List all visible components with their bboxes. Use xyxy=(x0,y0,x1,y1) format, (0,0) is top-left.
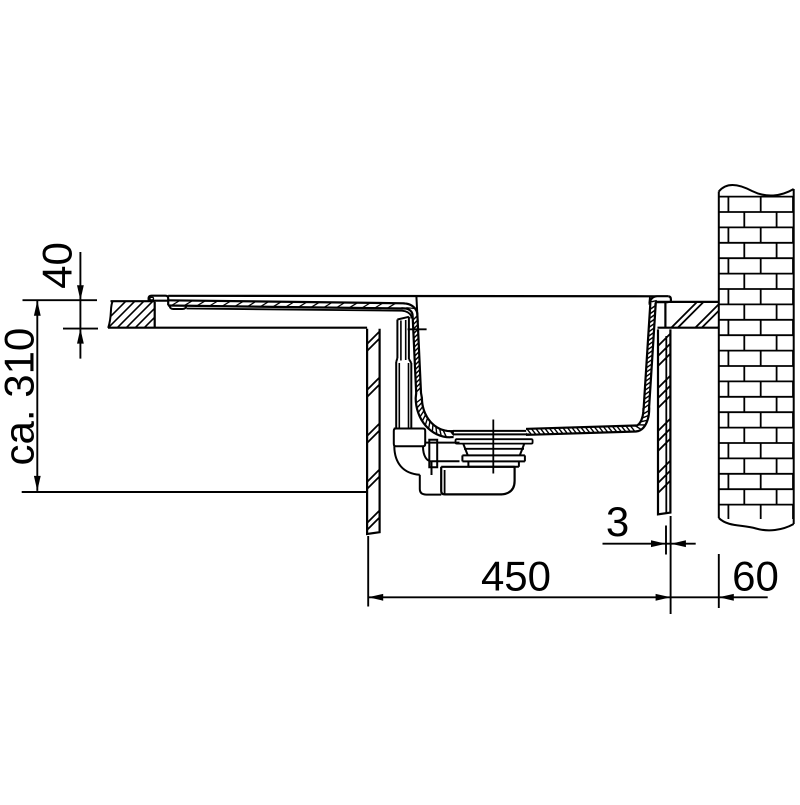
svg-text:ca. 310: ca. 310 xyxy=(0,328,43,466)
svg-text:450: 450 xyxy=(481,553,551,600)
svg-text:60: 60 xyxy=(732,553,779,600)
svg-text:40: 40 xyxy=(34,242,81,289)
svg-text:3: 3 xyxy=(606,498,629,545)
